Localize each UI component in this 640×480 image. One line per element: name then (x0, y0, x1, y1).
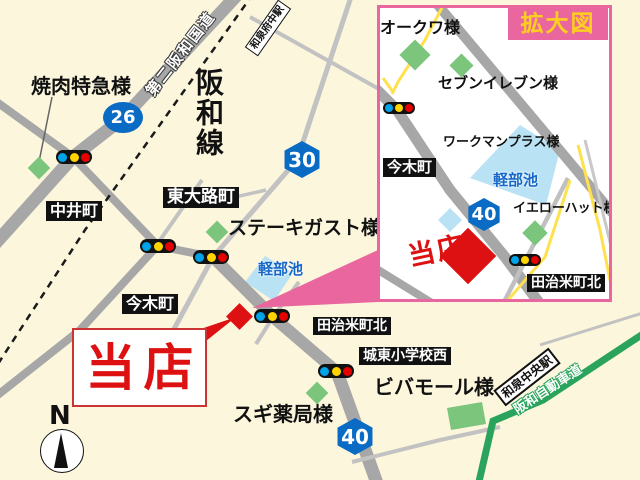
compass-needle-icon (54, 433, 68, 468)
inset-business-yellow-hat: イエローハット様 (513, 202, 612, 215)
inset-road-sw (380, 268, 440, 299)
hanwa-line-name: 阪和線 (188, 68, 228, 158)
area-label-joto-elementary-west: 城東小学校西 (359, 347, 451, 365)
inset-business-okuwa: オークワ様 (380, 20, 460, 36)
inset-thin-road-east (585, 140, 609, 250)
area-label-nakai: 中井町 (46, 201, 102, 221)
traffic-light-east (193, 250, 229, 264)
store-label-box: 当店 (72, 328, 207, 407)
business-yakiniku-tokkyu: 焼肉特急様 (31, 76, 131, 96)
viva-mall-green-area (447, 402, 486, 430)
traffic-light-nakai (56, 150, 92, 164)
traffic-light-tajime-kita (254, 309, 290, 323)
inset-karube-pond-name: 軽部池 (493, 173, 538, 188)
inset-area-label-tajime-kita: 田治米町北 (527, 274, 605, 292)
hanwa-line-railway (0, 0, 253, 370)
store-label: 当店 (86, 343, 202, 393)
inset-map: 40 オークワ様 セブンイレブン様 ワークマンプラス様 イエローハット様 軽部池… (377, 5, 612, 302)
inset-business-seven-eleven: セブンイレブン様 (438, 76, 558, 91)
area-label-higashioji: 東大路町 (163, 187, 239, 208)
area-label-imaki: 今木町 (122, 294, 178, 314)
access-map: 第二阪和国道 阪和線 阪和自動車道 和泉府中駅 和泉中央駅 中井町 東大路町 今… (0, 0, 640, 480)
minor-road-south (352, 427, 500, 462)
inset-small-pond (438, 208, 462, 232)
inset-area-label-imaki: 今木町 (383, 158, 436, 177)
traffic-light-joto (318, 364, 354, 378)
inset-traffic-light-tajime-kita (509, 254, 541, 266)
business-steak-gusto: ステーキガスト様 (228, 219, 380, 238)
business-viva-mall: ビバモール様 (374, 377, 494, 397)
karube-pond-name: 軽部池 (258, 262, 303, 277)
compass-north-label: N (49, 403, 71, 429)
minor-road-station (540, 312, 640, 345)
traffic-light-west (140, 239, 176, 253)
area-label-tajime-kita: 田治米町北 (313, 317, 391, 335)
inset-business-workman-plus: ワークマンプラス様 (443, 136, 559, 149)
business-sugi-pharmacy: スギ薬局様 (233, 404, 333, 424)
inset-title: 拡大図 (508, 8, 608, 40)
inset-traffic-light-imaki (383, 102, 415, 114)
route-badge-26: 26 (103, 102, 143, 133)
hanwa-expressway-road (478, 332, 640, 480)
